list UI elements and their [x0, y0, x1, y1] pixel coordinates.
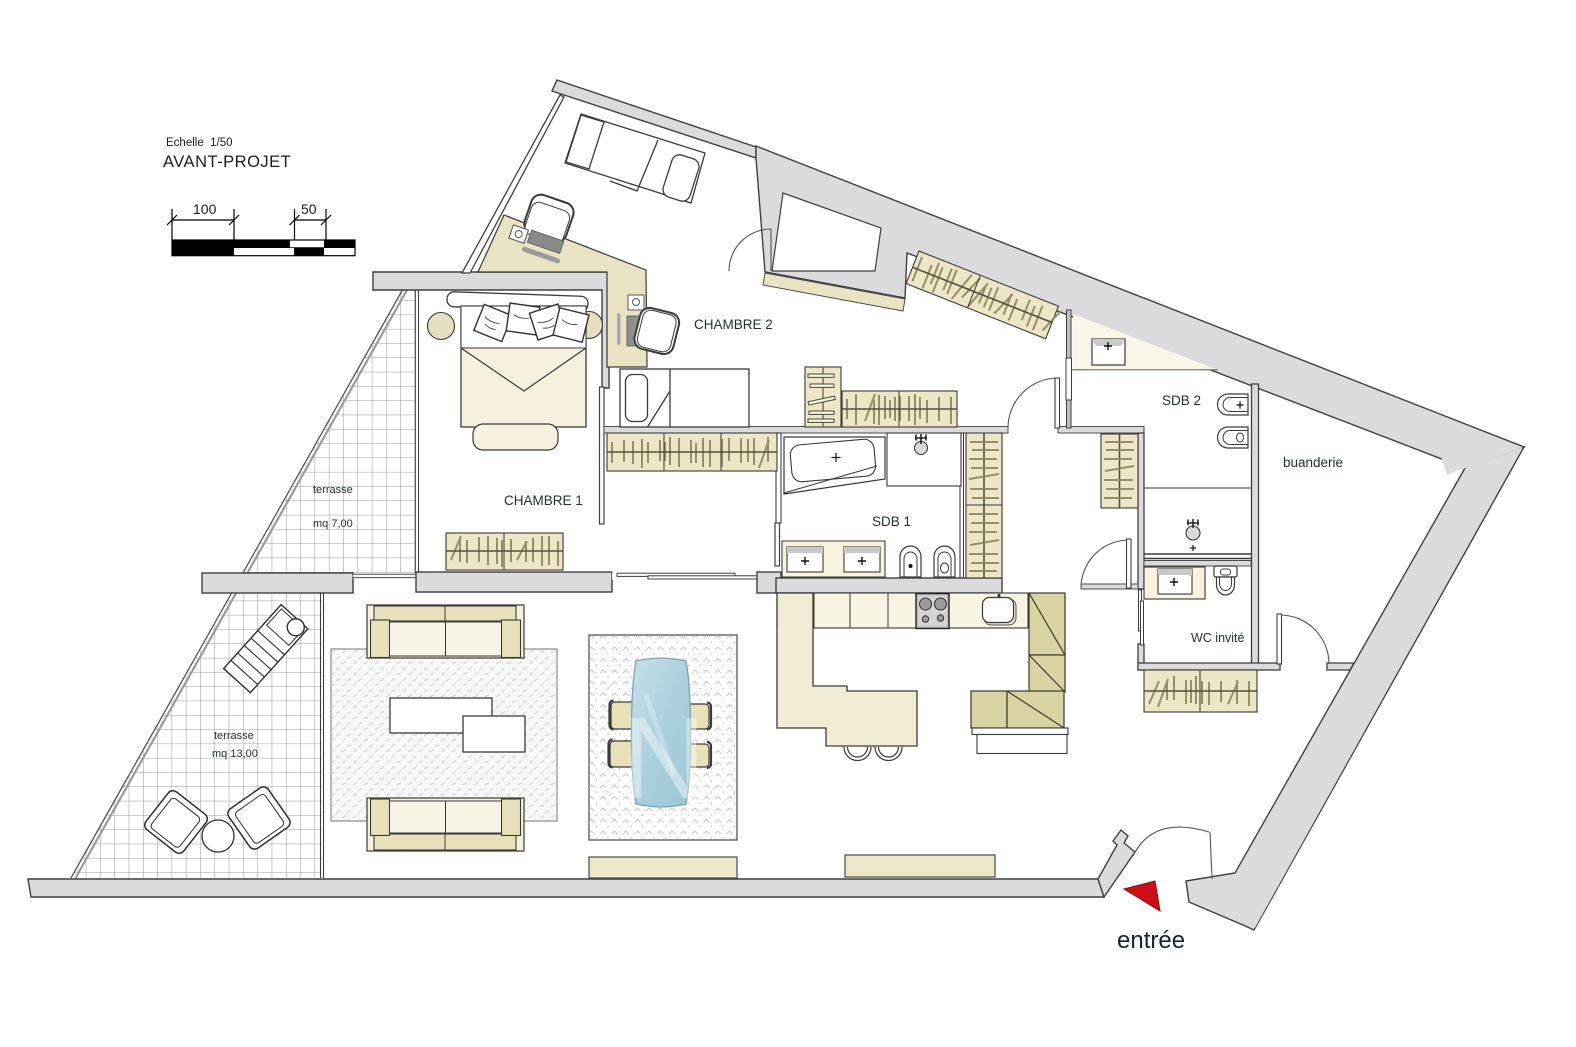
svg-text:50: 50 — [301, 201, 317, 217]
svg-text:CHAMBRE 1: CHAMBRE 1 — [504, 493, 583, 508]
svg-text:mq 13,00: mq 13,00 — [212, 748, 258, 760]
svg-text:mq 7,00: mq 7,00 — [313, 518, 353, 530]
svg-text:buanderie: buanderie — [1283, 455, 1343, 470]
svg-text:WC invité: WC invité — [1191, 631, 1245, 645]
svg-text:CHAMBRE 2: CHAMBRE 2 — [694, 317, 773, 332]
svg-text:terrasse: terrasse — [214, 730, 254, 742]
svg-text:Echelle 1/50: Echelle 1/50 — [166, 137, 233, 149]
svg-text:terrasse: terrasse — [313, 484, 353, 496]
svg-text:100: 100 — [193, 201, 217, 217]
svg-text:SDB 1: SDB 1 — [872, 514, 911, 529]
svg-text:SDB 2: SDB 2 — [1162, 393, 1201, 408]
svg-text:entrée: entrée — [1117, 927, 1185, 954]
svg-text:N: N — [622, 693, 706, 823]
svg-text:AVANT-PROJET: AVANT-PROJET — [163, 153, 291, 171]
